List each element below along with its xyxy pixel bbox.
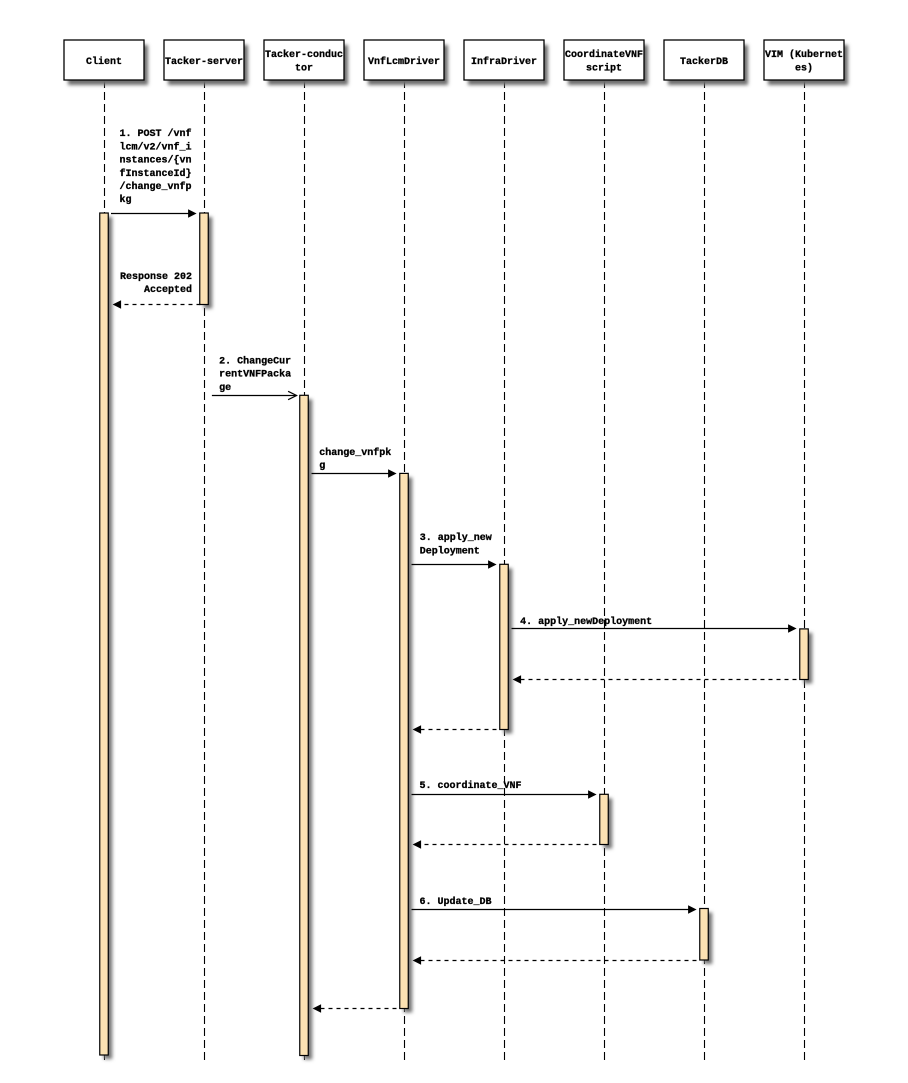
svg-text:fInstanceId}: fInstanceId} (120, 168, 192, 180)
svg-text:change_vnfpk: change_vnfpk (319, 447, 391, 459)
svg-text:rentVNFPacka: rentVNFPacka (219, 369, 291, 381)
svg-text:es): es) (795, 62, 813, 74)
svg-text:1. POST /vnf: 1. POST /vnf (120, 128, 192, 140)
svg-text:g: g (319, 461, 325, 472)
svg-text:Client: Client (86, 56, 122, 68)
svg-text:TackerDB: TackerDB (680, 56, 728, 68)
svg-text:3. apply_new: 3. apply_new (420, 532, 492, 544)
svg-text:VnfLcmDriver: VnfLcmDriver (368, 56, 440, 68)
svg-text:CoordinateVNF: CoordinateVNF (565, 49, 643, 61)
svg-text:Response 202: Response 202 (120, 272, 192, 283)
svg-text:InfraDriver: InfraDriver (471, 56, 537, 68)
svg-text:2. ChangeCur: 2. ChangeCur (219, 356, 291, 368)
svg-text:VIM (Kubernet: VIM (Kubernet (765, 49, 843, 61)
svg-text:script: script (586, 62, 622, 74)
svg-text:lcm/v2/vnf_i: lcm/v2/vnf_i (120, 141, 192, 153)
svg-text:kg: kg (120, 194, 132, 206)
svg-text:5. coordinate_VNF: 5. coordinate_VNF (420, 780, 522, 792)
svg-text:/change_vnfp: /change_vnfp (120, 181, 192, 193)
svg-text:4. apply_newDeployment: 4. apply_newDeployment (520, 616, 652, 628)
svg-text:nstances/{vn: nstances/{vn (120, 155, 192, 167)
svg-text:Tacker-server: Tacker-server (165, 56, 243, 68)
svg-text:ge: ge (219, 383, 231, 394)
svg-text:Tacker-conduc: Tacker-conduc (265, 49, 343, 61)
svg-text:Deployment: Deployment (420, 545, 480, 557)
svg-text:6. Update_DB: 6. Update_DB (420, 896, 492, 908)
svg-text:tor: tor (295, 63, 313, 74)
svg-text:Accepted: Accepted (144, 284, 192, 296)
